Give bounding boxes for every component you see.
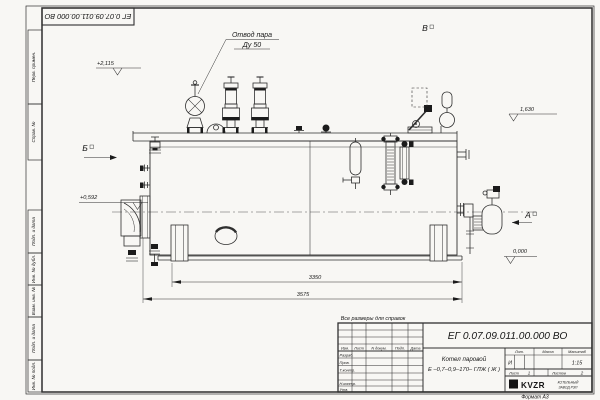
tb-sheets-label: Листов [551,372,566,376]
tb-sheet-value: 1 [528,371,531,376]
callout-line1: Отвод пара [232,31,272,39]
boiler-view [112,77,536,266]
steam-outlet-valve [186,81,205,133]
leader-line [198,40,226,95]
burner-assembly [121,196,150,261]
tb-name-line1: Котел паровой [442,356,487,363]
tb-col-data: Дата [409,346,420,350]
margin-cell-label: Перв. примен. [31,52,36,83]
elevation-burner: +0,592 [79,195,148,210]
svg-text:В: В [422,23,428,33]
margin-cell-label: Справ. № [31,122,36,143]
tb-col-list: Лист [353,346,364,350]
tb-col-podp: Подп. [395,346,405,350]
tb-row-tkontr: Т.контр. [340,367,356,372]
tb-doc-number: ЕГ 0.07.09.011.00.000 ВО [448,331,568,342]
elevation-zero: 0,000 [504,249,537,264]
company-logo: KVZR КОТЕЛЬНЫЙ ЗАВОД РЭП [509,380,579,391]
elevation-right: 1,630 [509,107,557,121]
support-leg-right [430,225,447,261]
tb-row-utv: Утв. [340,387,349,392]
elevation-deck: +2,115 [96,61,141,75]
tb-row-prov: Пров. [340,360,350,365]
base-skid [158,256,462,260]
svg-text:+2,115: +2,115 [97,61,115,67]
margin-cells: Перв. примен. Справ. № Подп. и дата Инв.… [28,30,42,392]
tb-row-nkontr: Н.контр. [340,381,356,386]
lever-bracket [408,88,432,133]
boiler-general-view-drawing: ЕГ 0.07.09.011.00.000 ВО Перв. примен. С… [0,0,600,400]
tb-col-docum: N докум. [371,346,386,350]
company-line1: КОТЕЛЬНЫЙ [558,381,579,385]
callout-line2: Ду 50 [242,42,261,49]
tb-scale-value: 1:15 [572,361,583,367]
tb-col-izm: Изм. [341,346,349,350]
boiler-shell [150,141,457,255]
tb-name-line2: Е –0,7–0,9–170– ГЛЖ ( Ж ) [428,367,500,373]
sight-glass [343,138,361,189]
format-note: Формат А3 [521,395,549,400]
svg-text:3350: 3350 [309,275,322,281]
deck-stub-fittings [294,125,331,134]
margin-cell-label: Взам. инв. № [31,287,36,315]
margin-cell-label: Подп. и дата [31,324,36,353]
title-block: ЕГ 0.07.09.011.00.000 ВО Котел паровой Е… [338,323,592,392]
tb-row-razrab: Разраб. [340,353,354,358]
company-logo-text: KVZR [521,381,545,390]
dimension-3350: 3350 [172,262,462,303]
water-level-gauge [381,133,413,195]
tb-scale-label: Масштаб [568,350,587,354]
tb-massa-label: Масса [542,350,553,354]
tb-sheet-label: Лист [508,372,519,376]
rear-nozzle-top [457,149,469,160]
svg-text:+0,592: +0,592 [80,195,98,201]
support-leg-left [171,225,188,261]
svg-text:3575: 3575 [297,292,310,298]
lifting-lug [207,124,225,133]
manhole [215,227,237,244]
tb-sheets-value: 2 [580,371,584,376]
feed-pump [457,186,502,254]
pressure-gauge-siphon [440,92,455,133]
company-line2: ЗАВОД РЭП [559,386,579,390]
view-marker-b-top: В [422,23,433,33]
safety-valve-1 [223,77,240,133]
svg-text:А: А [524,210,531,220]
annotations: Отвод пара Ду 50 В Б А +2,115 [79,23,557,322]
svg-text:0,000: 0,000 [513,249,528,255]
view-marker-b-left: Б [82,143,117,160]
dimension-3575: 3575 [143,238,462,303]
margin-cell-label: Инв. № подл. [31,362,36,391]
top-doc-number: ЕГ 0.07.09.011.00.000 ВО [44,12,131,21]
small-valve-left [149,137,161,153]
svg-text:1,630: 1,630 [520,107,535,113]
drawing-sheet: ЕГ 0.07.09.011.00.000 ВО Перв. примен. С… [0,0,600,400]
margin-cell-label: Подп. и дата [31,217,36,246]
sensor-outline-dashed [412,88,427,107]
reference-note: Все размеры для справок [341,316,406,322]
tb-lit-value: И [508,361,512,367]
top-doc-number-cell: ЕГ 0.07.09.011.00.000 ВО [42,8,134,25]
margin-cell-label: Инв. № дубл. [31,255,36,283]
tb-lit-label: Лит. [514,350,524,354]
safety-valve-2 [252,77,269,133]
svg-text:Б: Б [82,143,88,153]
shell-taps-left [140,165,150,189]
